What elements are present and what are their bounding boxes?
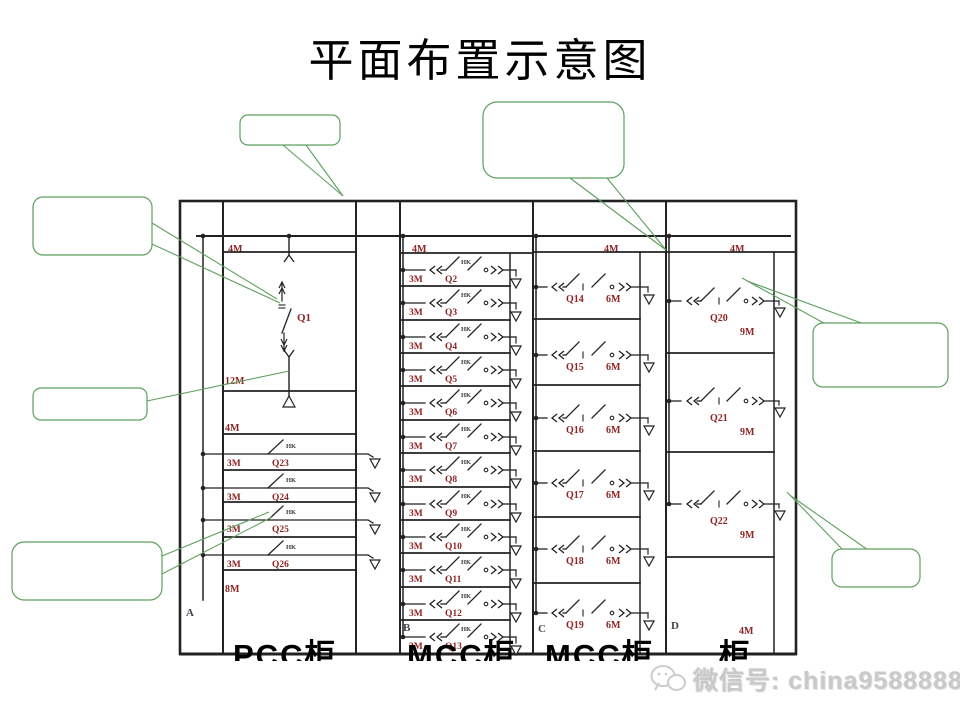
feeder-size: 3M xyxy=(227,459,241,469)
mcc3-feeder-Q20: Q209M xyxy=(667,288,785,338)
outgoing-arrow-icon xyxy=(511,379,521,388)
feeder-name: Q25 xyxy=(272,525,289,535)
feeder-size: 6M xyxy=(606,556,621,567)
mcc1-feeder-Q6: HK3MQ6 xyxy=(401,390,521,421)
mcc1-feeder-Q8: HK3MQ8 xyxy=(401,457,521,488)
outgoing-arrow-icon xyxy=(511,446,521,455)
panel-mcc3: Q209MQ219MQ229MD4M xyxy=(666,288,785,637)
contact-mark: HK xyxy=(286,477,296,484)
outgoing-arrow-icon xyxy=(775,308,785,317)
callout-7 xyxy=(787,492,920,587)
contact-mark: HK xyxy=(461,593,471,600)
contact-mark: HK xyxy=(286,544,296,551)
spare-size-8m: 8M xyxy=(225,584,240,595)
feeder-size: 9M xyxy=(740,327,755,338)
device-label-q1: Q1 xyxy=(297,312,311,324)
feeder-name: Q20 xyxy=(710,313,728,324)
outgoing-arrow-icon xyxy=(370,459,380,468)
outgoing-arrow-icon xyxy=(370,493,380,502)
feeder-name: Q10 xyxy=(445,542,462,552)
pcc-feeder-Q26: HK3MQ26 xyxy=(201,541,380,570)
wechat-icon xyxy=(650,664,686,694)
mcc2-feeder-Q17: Q176M xyxy=(534,470,654,501)
feeder-name: Q7 xyxy=(445,442,457,452)
callout-bubble xyxy=(12,542,162,600)
feeder-size: 6M xyxy=(606,294,621,305)
section-letter-c: C xyxy=(538,623,546,635)
main-busbar: 4M4M4M4M xyxy=(197,234,796,637)
layout-diagram: 4M4M4M4MQ112M4MHK3MQ23HK3MQ24HK3MQ25HK3M… xyxy=(0,0,960,720)
feeder-size: 3M xyxy=(409,609,423,619)
feeder-size: 3M xyxy=(409,509,423,519)
mcc1-feeder-Q5: HK3MQ5 xyxy=(401,357,521,388)
contact-mark: HK xyxy=(461,426,471,433)
outgoing-arrow-icon xyxy=(644,621,654,630)
outgoing-arrow-icon xyxy=(644,295,654,304)
mcc1-feeder-Q7: HK3MQ7 xyxy=(401,424,521,455)
panel-pcc: Q112M4MHK3MQ23HK3MQ24HK3MQ25HK3MQ268MA xyxy=(186,236,380,619)
panel-mcc1: HK3MQ2HK3MQ3HK3MQ4HK3MQ5HK3MQ6HK3MQ7HK3M… xyxy=(400,257,521,655)
contact-mark: HK xyxy=(461,392,471,399)
outgoing-arrow-icon xyxy=(370,560,380,569)
outgoing-arrow-icon xyxy=(644,491,654,500)
watermark: 微信号: china9588888 xyxy=(650,661,960,697)
section-letter-d: D xyxy=(671,620,679,632)
feeder-size: 3M xyxy=(409,275,423,285)
feeder-size: 3M xyxy=(409,408,423,418)
callout-bubble xyxy=(832,549,920,587)
pcc-feeder-Q23: HK3MQ23 xyxy=(201,440,380,469)
callout-bubble xyxy=(33,197,152,255)
callout-3 xyxy=(33,197,280,303)
feeder-size: 6M xyxy=(606,425,621,436)
mcc2-feeder-Q19: Q196M xyxy=(534,600,654,631)
contact-mark: HK xyxy=(461,459,471,466)
feeder-name: Q22 xyxy=(710,516,728,527)
callout-bubble xyxy=(240,115,340,145)
mcc2-feeder-Q15: Q156M xyxy=(534,342,654,373)
stab-icon xyxy=(284,255,294,262)
outgoing-arrow-icon xyxy=(511,579,521,588)
mcc3-feeder-Q21: Q219M xyxy=(667,388,785,438)
feeder-name: Q19 xyxy=(566,620,584,631)
feeder-name: Q12 xyxy=(445,609,462,619)
contact-mark: HK xyxy=(461,526,471,533)
feeder-name: Q26 xyxy=(272,560,289,570)
cabinet-label-pcc: PCC柜 xyxy=(233,639,337,661)
mcc1-feeder-Q2: HK3MQ2 xyxy=(401,257,521,288)
mcc1-feeder-Q10: HK3MQ10 xyxy=(401,524,521,555)
feeder-name: Q6 xyxy=(445,408,457,418)
cabinet-label-mcc1: MCC柜 xyxy=(407,639,517,661)
feeder-name: Q9 xyxy=(445,509,457,519)
feeder-name: Q2 xyxy=(445,275,457,285)
outgoing-arrow-icon xyxy=(511,479,521,488)
contact-mark: HK xyxy=(461,326,471,333)
callout-2 xyxy=(483,102,666,250)
contact-mark: HK xyxy=(461,493,471,500)
feeder-size: 6M xyxy=(606,620,621,631)
feeder-size: 6M xyxy=(606,362,621,373)
bus-size-mcc3: 4M xyxy=(730,244,745,255)
stab-icon xyxy=(284,350,294,357)
feeder-size: 3M xyxy=(409,442,423,452)
callout-bubble xyxy=(813,323,948,387)
feeder-size: 9M xyxy=(740,427,755,438)
cabinet-labels: PCC柜 MCC柜 MCC柜 柜 xyxy=(0,639,960,661)
feeder-name: Q4 xyxy=(445,342,457,352)
contact-mark: HK xyxy=(461,626,471,633)
feeder-name: Q18 xyxy=(566,556,584,567)
feeder-size: 6M xyxy=(606,490,621,501)
feeder-name: Q21 xyxy=(710,413,728,424)
callout-bubble xyxy=(33,388,147,420)
feeder-name: Q3 xyxy=(445,308,457,318)
mcc2-feeder-Q14: Q146M xyxy=(534,274,654,305)
mcc1-feeder-Q12: HK3MQ12 xyxy=(401,591,521,622)
feeder-name: Q23 xyxy=(272,459,289,469)
outgoing-arrow-icon xyxy=(511,312,521,321)
contact-mark: HK xyxy=(286,509,296,516)
feeder-size: 3M xyxy=(409,308,423,318)
feeder-size: 3M xyxy=(409,475,423,485)
feeder-size: 9M xyxy=(740,530,755,541)
section-letter-a: A xyxy=(186,607,194,619)
feeder-name: Q11 xyxy=(445,575,462,585)
callout-bubble xyxy=(483,102,624,178)
outgoing-arrow-icon xyxy=(511,346,521,355)
contact-mark: HK xyxy=(461,292,471,299)
slide: 平面布置示意图 4M4M4M4MQ112M4MHK3MQ23HK3MQ24HK3… xyxy=(0,0,960,720)
mcc2-feeder-Q18: Q186M xyxy=(534,536,654,567)
mcc1-feeder-Q4: HK3MQ4 xyxy=(401,324,521,355)
panel-mcc2: Q146MQ156MQ166MQ176MQ186MQ196MC xyxy=(533,274,654,635)
feeder-size: 3M xyxy=(227,560,241,570)
size-label-12m: 12M xyxy=(225,376,245,387)
feeder-name: Q16 xyxy=(566,425,584,436)
bus-size-pcc: 4M xyxy=(228,244,243,255)
mcc3-feeder-Q22: Q229M xyxy=(667,491,785,541)
feeder-size: 3M xyxy=(409,342,423,352)
mcc1-feeder-Q11: HK3MQ11 xyxy=(401,557,521,588)
outgoing-arrow-icon xyxy=(511,513,521,522)
feeder-name: Q5 xyxy=(445,375,457,385)
callout-1 xyxy=(240,115,343,196)
feeder-name: Q14 xyxy=(566,294,584,305)
section-letter-b: B xyxy=(403,622,411,634)
contact-mark: HK xyxy=(461,259,471,266)
feeder-size: 3M xyxy=(409,542,423,552)
feeder-size: 3M xyxy=(409,375,423,385)
mcc1-feeder-Q9: HK3MQ9 xyxy=(401,491,521,522)
callout-4 xyxy=(33,371,289,420)
outgoing-arrow-icon xyxy=(511,613,521,622)
watermark-text: 微信号: china9588888 xyxy=(693,661,960,697)
outgoing-arrow-icon xyxy=(511,279,521,288)
feeder-size: 3M xyxy=(409,575,423,585)
pcc-feeder-Q25: HK3MQ25 xyxy=(201,506,380,535)
pcc-feeder-Q24: HK3MQ24 xyxy=(201,474,380,503)
outgoing-arrow-icon xyxy=(644,426,654,435)
outgoing-arrow-icon xyxy=(644,363,654,372)
outgoing-arrow-icon xyxy=(644,557,654,566)
outgoing-arrow-icon xyxy=(511,546,521,555)
contact-mark: HK xyxy=(461,359,471,366)
callout-6 xyxy=(742,278,948,387)
bus-size-mcc2: 4M xyxy=(604,244,619,255)
contact-mark: HK xyxy=(461,559,471,566)
mcc1-feeder-Q3: HK3MQ3 xyxy=(401,290,521,321)
feeder-name: Q8 xyxy=(445,475,457,485)
feeder-name: Q17 xyxy=(566,490,584,501)
contact-mark: HK xyxy=(286,443,296,450)
outgoing-arrow-icon xyxy=(511,412,521,421)
outgoing-arrow-icon xyxy=(370,525,380,534)
cabinet-label-mcc2: MCC柜 xyxy=(545,639,655,661)
bottom-size-4m: 4M xyxy=(739,626,754,637)
cabinet-label-mcc3: 柜 xyxy=(719,639,752,661)
mcc2-feeder-Q16: Q166M xyxy=(534,405,654,436)
outgoing-arrow-icon xyxy=(775,408,785,417)
outgoing-arrow-icon xyxy=(775,511,785,520)
feeder-name: Q15 xyxy=(566,362,584,373)
ground-icon xyxy=(283,396,295,407)
size-label-4m: 4M xyxy=(225,423,240,434)
